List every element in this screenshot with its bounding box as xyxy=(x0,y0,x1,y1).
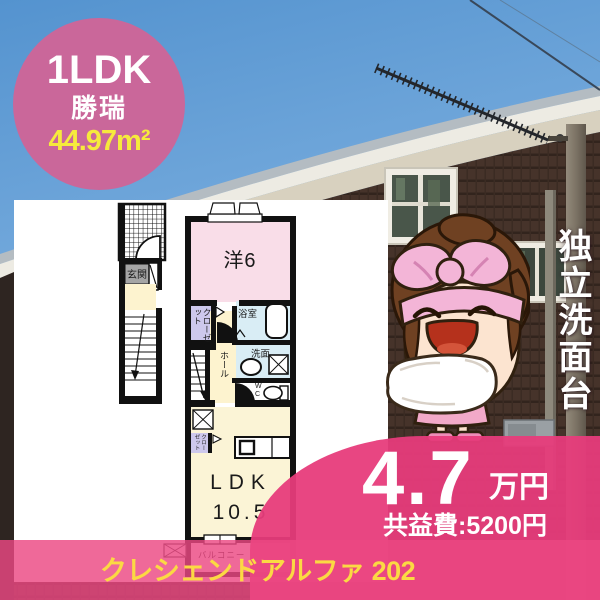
rent-amount: 4.7 xyxy=(362,441,474,517)
room-label-hall: ホール xyxy=(219,351,229,399)
fridge-icon xyxy=(193,410,213,429)
badge-layout-type: 1LDK xyxy=(47,49,151,91)
room-label-bathroom: 浴室 xyxy=(238,306,257,320)
door-arc-wc xyxy=(235,383,255,403)
room-label-toilet: WC xyxy=(255,383,264,399)
room-label-entrance: 玄関 xyxy=(125,266,149,281)
mascot-character xyxy=(370,210,530,445)
washer-icon xyxy=(269,355,288,374)
feature-label: 独立洗面台 xyxy=(548,228,597,428)
listing-flyer: 玄関 洋6 クローゼット 浴室 洗面 ホール WC クローゼット LDK 10.… xyxy=(0,0,600,600)
sink-icon xyxy=(241,359,261,375)
window-icon xyxy=(208,203,262,222)
building-name: クレシェンドアルファ 202 xyxy=(0,549,515,588)
bathtub-icon xyxy=(266,304,287,338)
room-label-closet-lower: クローゼット xyxy=(193,434,206,453)
room-label-closet-upper: クローゼット xyxy=(192,308,211,345)
entrance-stairs xyxy=(119,204,165,404)
room-label-western-room: 洋6 xyxy=(190,244,290,273)
kitchen-counter-icon xyxy=(235,437,290,458)
common-fee: 共益費:5200円 xyxy=(345,512,585,541)
room-label-washroom: 洗面 xyxy=(251,346,270,360)
property-badge: 1LDK 勝瑞 44.97m² xyxy=(13,18,185,190)
badge-floor-area: 44.97m² xyxy=(48,124,149,159)
toilet-icon xyxy=(264,386,288,400)
badge-area-name: 勝瑞 xyxy=(71,93,127,124)
rent-unit: 万円 xyxy=(489,473,549,503)
